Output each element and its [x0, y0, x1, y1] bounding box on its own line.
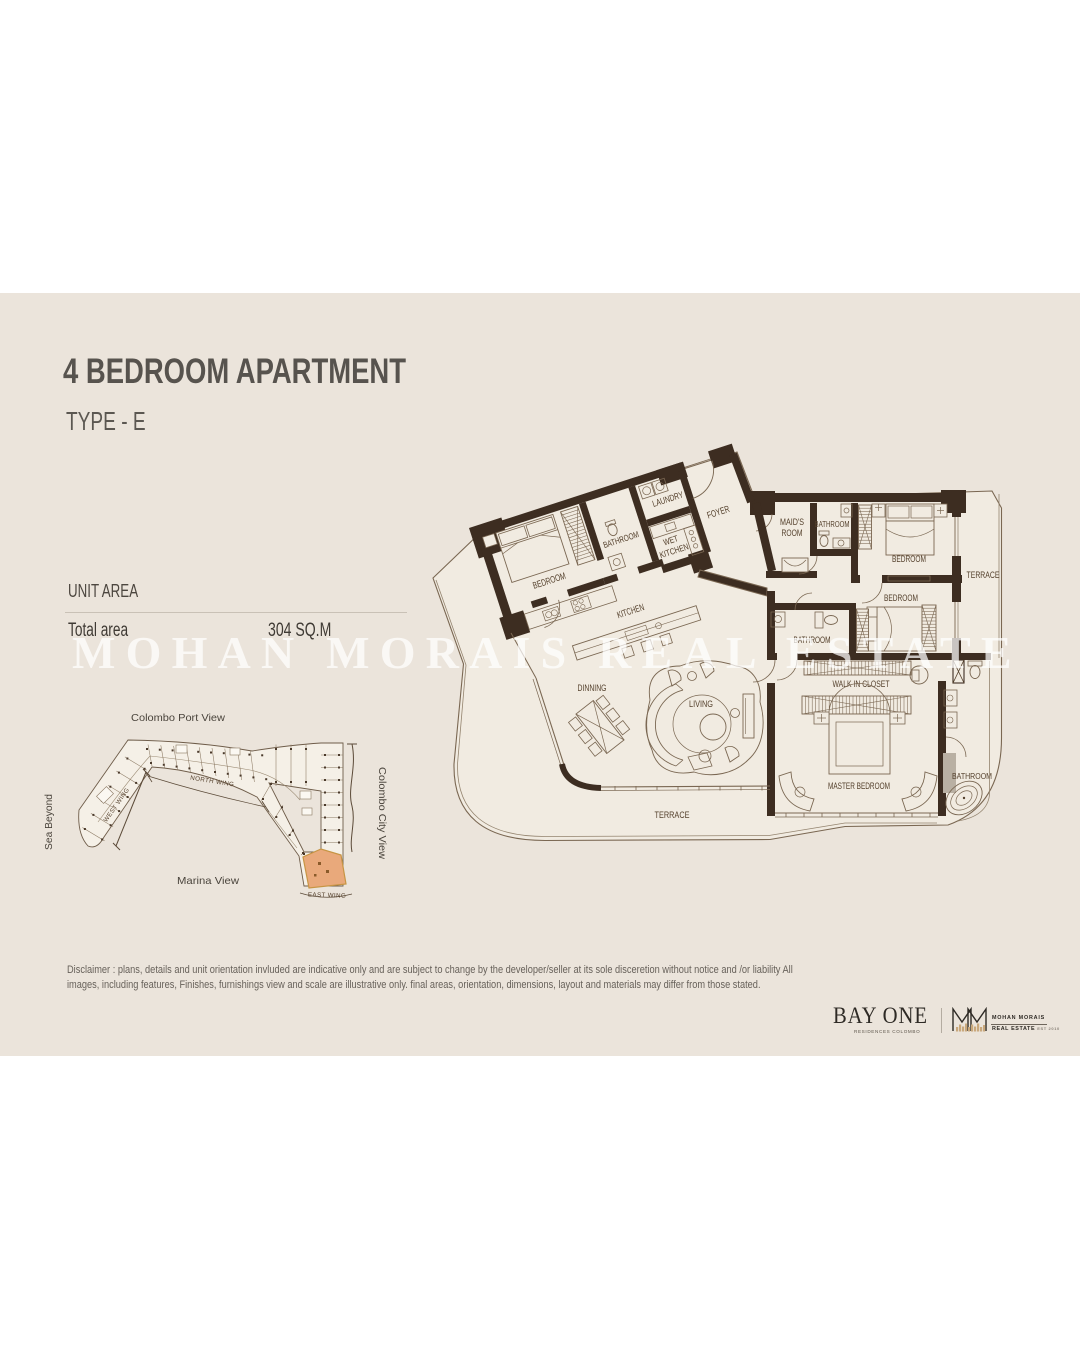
- svg-text:ROOM: ROOM: [782, 528, 803, 538]
- svg-text:BATHROOM: BATHROOM: [952, 771, 992, 781]
- svg-text:EAST WING: EAST WING: [308, 891, 346, 899]
- svg-text:Marina View: Marina View: [177, 875, 239, 887]
- svg-text:Colombo Port View: Colombo Port View: [131, 712, 225, 724]
- svg-text:MASTER BEDROOM: MASTER BEDROOM: [828, 781, 890, 791]
- svg-text:MAID'S: MAID'S: [780, 517, 804, 527]
- svg-text:TERRACE: TERRACE: [967, 570, 1000, 580]
- svg-text:BEDROOM: BEDROOM: [892, 554, 926, 564]
- svg-text:TERRACE: TERRACE: [655, 810, 690, 820]
- svg-text:LIVING: LIVING: [689, 699, 713, 710]
- svg-text:Sea Beyond: Sea Beyond: [43, 794, 55, 850]
- svg-text:BATHROOM: BATHROOM: [815, 520, 850, 529]
- svg-text:BEDROOM: BEDROOM: [884, 593, 918, 603]
- svg-text:DINNING: DINNING: [578, 683, 607, 694]
- svg-text:Colombo City View: Colombo City View: [376, 767, 388, 859]
- svg-text:WALK IN CLOSET: WALK IN CLOSET: [833, 679, 890, 689]
